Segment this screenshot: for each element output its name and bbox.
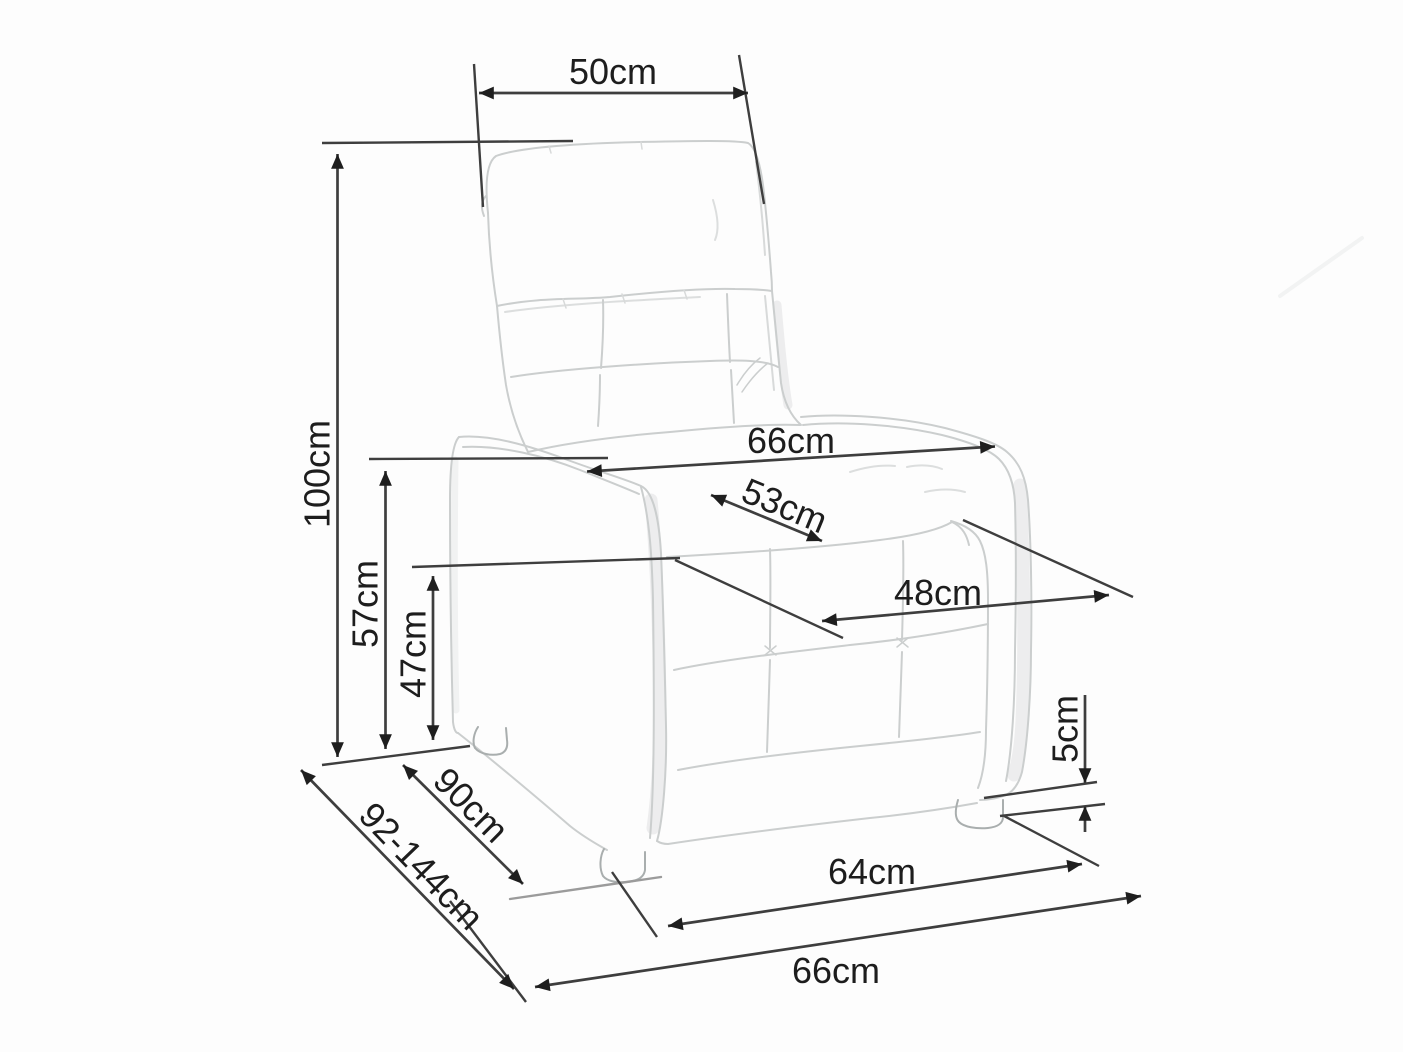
svg-text:66cm: 66cm <box>792 950 880 991</box>
svg-text:50cm: 50cm <box>569 51 657 92</box>
svg-text:48cm: 48cm <box>894 572 982 613</box>
svg-text:100cm: 100cm <box>297 420 338 528</box>
svg-text:66cm: 66cm <box>747 420 835 461</box>
svg-text:64cm: 64cm <box>828 851 916 892</box>
svg-text:47cm: 47cm <box>393 610 434 698</box>
svg-text:5cm: 5cm <box>1045 695 1086 763</box>
svg-text:57cm: 57cm <box>345 560 386 648</box>
